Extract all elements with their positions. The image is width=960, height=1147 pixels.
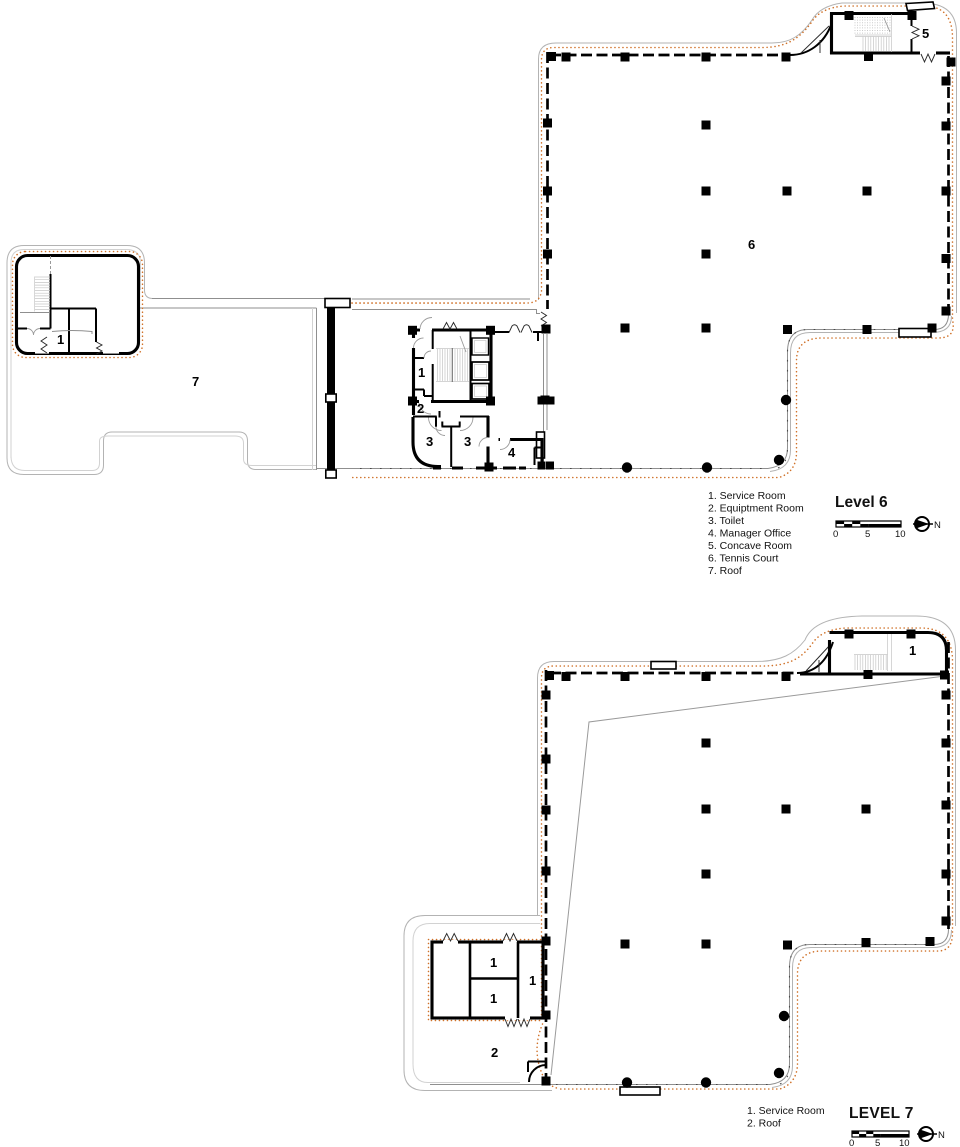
svg-text:1: 1 (909, 643, 916, 658)
svg-text:N: N (938, 1130, 945, 1141)
svg-text:1. Service Room: 1. Service Room (747, 1105, 825, 1117)
svg-text:3. Toilet: 3. Toilet (708, 515, 744, 527)
svg-text:10: 10 (899, 1138, 910, 1147)
svg-text:6: 6 (748, 237, 755, 252)
svg-text:2: 2 (491, 1045, 498, 1060)
svg-text:7. Roof: 7. Roof (708, 565, 742, 577)
svg-text:4. Manager Office: 4. Manager Office (708, 528, 791, 540)
svg-text:N: N (934, 520, 941, 531)
svg-text:4: 4 (508, 445, 516, 460)
svg-text:1: 1 (490, 955, 497, 970)
svg-text:7: 7 (192, 374, 199, 389)
svg-text:LEVEL 7: LEVEL 7 (849, 1105, 914, 1122)
svg-text:0: 0 (833, 529, 838, 540)
svg-text:5: 5 (875, 1138, 880, 1147)
svg-text:3: 3 (464, 434, 471, 449)
svg-text:2. Equiptment Room: 2. Equiptment Room (708, 503, 804, 515)
svg-text:10: 10 (895, 529, 906, 540)
svg-text:6. Tennis Court: 6. Tennis Court (708, 553, 779, 565)
svg-text:1: 1 (529, 973, 536, 988)
svg-text:1: 1 (57, 332, 64, 347)
svg-text:2: 2 (417, 401, 424, 416)
svg-text:1: 1 (418, 365, 425, 380)
svg-text:0: 0 (849, 1138, 854, 1147)
svg-text:2. Roof: 2. Roof (747, 1118, 781, 1130)
svg-text:Level 6: Level 6 (835, 494, 888, 511)
svg-text:5: 5 (865, 529, 870, 540)
svg-text:1: 1 (490, 991, 497, 1006)
svg-text:5. Concave Room: 5. Concave Room (708, 540, 792, 552)
svg-text:1. Service Room: 1. Service Room (708, 490, 786, 502)
svg-text:5: 5 (922, 26, 929, 41)
svg-text:3: 3 (426, 434, 433, 449)
